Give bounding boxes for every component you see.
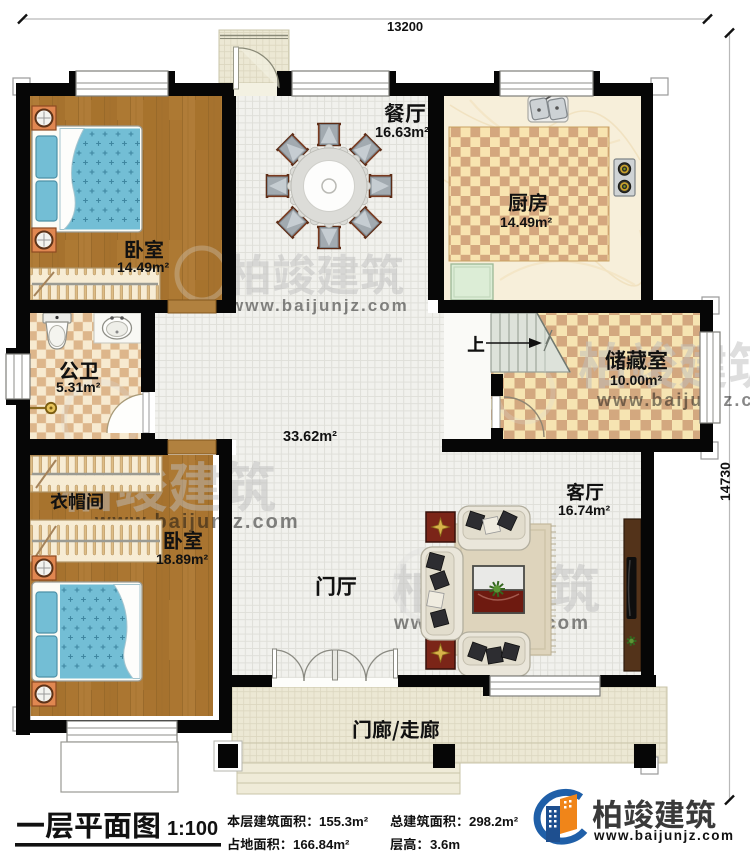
svg-text:13200: 13200 — [387, 19, 423, 34]
svg-text:1:100: 1:100 — [167, 818, 218, 840]
svg-text:298.2m²: 298.2m² — [469, 814, 519, 829]
svg-text:14730: 14730 — [717, 462, 733, 501]
svg-text:www.baijunjz.com: www.baijunjz.com — [596, 390, 750, 410]
svg-text:14.49m²: 14.49m² — [117, 259, 169, 275]
svg-text:10.00m²: 10.00m² — [610, 372, 662, 388]
svg-text:16.63m²: 16.63m² — [375, 125, 429, 141]
svg-text:155.3m²: 155.3m² — [319, 814, 369, 829]
svg-text:www.baijunjz.com: www.baijunjz.com — [593, 828, 735, 843]
svg-text:www.baijunjz.com: www.baijunjz.com — [229, 296, 409, 315]
svg-text:166.84m²: 166.84m² — [293, 837, 350, 852]
svg-text:18.89m²: 18.89m² — [156, 551, 208, 567]
svg-text:14.49m²: 14.49m² — [500, 214, 552, 230]
svg-text:5.31m²: 5.31m² — [56, 379, 101, 395]
svg-text:3.6m: 3.6m — [430, 837, 460, 852]
svg-text:16.74m²: 16.74m² — [558, 502, 610, 518]
svg-text:33.62m²: 33.62m² — [283, 429, 337, 445]
